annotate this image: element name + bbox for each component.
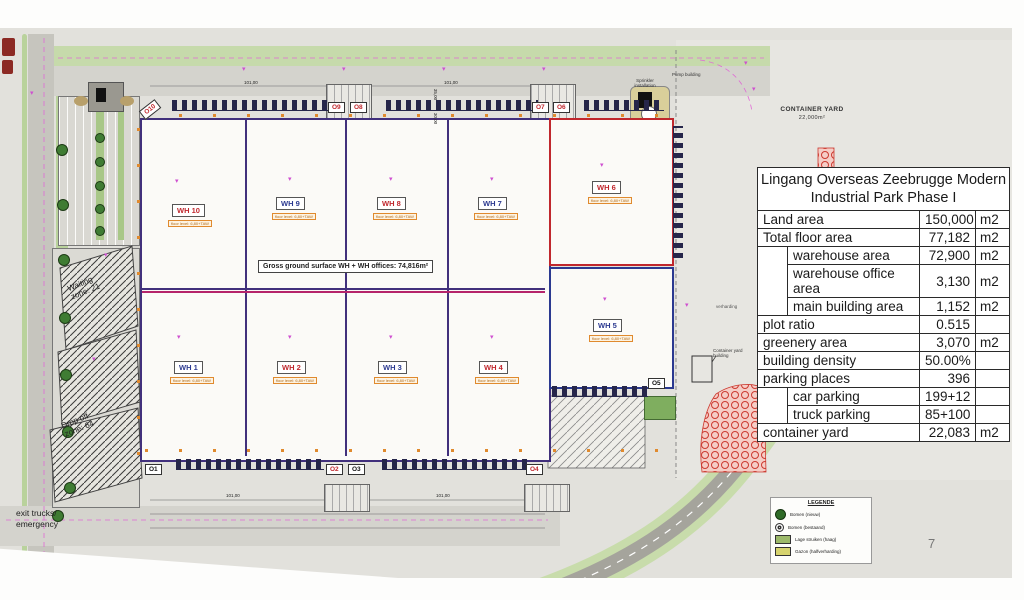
- office-label-o4: O4: [526, 464, 543, 475]
- office-label-o6: O6: [553, 102, 570, 113]
- office-label-o3: O3: [348, 464, 365, 475]
- loading-docks: [176, 459, 324, 470]
- dock-parking-island: [324, 484, 370, 512]
- warehouse-label-wh10: WH 10: [172, 204, 205, 217]
- table-title-row: Lingang Overseas Zeebrugge Modern Indust…: [758, 168, 1010, 211]
- page-margin-top: [0, 0, 1024, 28]
- hydrant-marker-icon: ▾: [288, 334, 292, 341]
- loading-docks: [584, 100, 664, 111]
- floor-level-note: floor level: 6,80+TAW: [273, 377, 317, 384]
- warehouse-label-wh2: WH 2: [277, 361, 306, 374]
- floor-level-note: floor level: 6,80+TAW: [588, 197, 632, 204]
- hydrant-marker-icon: ▾: [288, 176, 292, 183]
- office-label-o1: O1: [145, 464, 162, 475]
- warehouse-label-wh1: WH 1: [174, 361, 203, 374]
- table-row: main building area 1,152 m2: [758, 298, 1010, 316]
- table-row: parking places 396: [758, 370, 1010, 388]
- legend-item: Gazon (halfverharding): [775, 547, 867, 556]
- tick-strip: [145, 114, 665, 117]
- dimension-label: 101,00: [444, 80, 458, 85]
- dimension-label: 101,00: [244, 80, 258, 85]
- site-plan-screenshot: WH 10 floor level: 6,80+TAW WH 9 floor l…: [0, 0, 1024, 600]
- floor-level-note: floor level: 6,80+TAW: [170, 377, 214, 384]
- office-label-o9: O9: [328, 102, 345, 113]
- shrubs-icon: [775, 535, 791, 544]
- table-row: truck parking 85+100: [758, 406, 1010, 424]
- table-row: container yard 22,083 m2: [758, 424, 1010, 442]
- loading-docks: [673, 126, 683, 258]
- hydrant-marker-icon: ▾: [600, 162, 604, 169]
- dock-parking-island: [524, 484, 570, 512]
- warehouse-label-wh4: WH 4: [479, 361, 508, 374]
- table-row: greenery area 3,070 m2: [758, 334, 1010, 352]
- tick-strip: [145, 449, 665, 452]
- table-row: plot ratio 0.515: [758, 316, 1010, 334]
- hydrant-marker-icon: ▾: [603, 296, 607, 303]
- warehouse-label-wh9: WH 9: [276, 197, 305, 210]
- grid-line: [142, 288, 545, 290]
- hydrant-marker-icon: ▾: [542, 66, 546, 73]
- warehouse-label-wh3: WH 3: [378, 361, 407, 374]
- hydrant-marker-icon: ▾: [242, 66, 246, 73]
- hydrant-marker-icon: ▾: [389, 334, 393, 341]
- table-row: building density 50.00%: [758, 352, 1010, 370]
- office-label-o7: O7: [532, 102, 549, 113]
- hydrant-marker-icon: ▾: [389, 176, 393, 183]
- page-number: 7: [928, 536, 935, 551]
- table-row: warehouse office area 3,130 m2: [758, 265, 1010, 298]
- hydrant-marker-icon: ▾: [342, 66, 346, 73]
- warehouse-label-wh5: WH 5: [593, 319, 622, 332]
- warehouse-label-wh6: WH 6: [592, 181, 621, 194]
- legend-title: LEGENDE: [775, 500, 867, 506]
- loading-docks: [386, 100, 538, 111]
- hydrant-marker-icon: ▾: [30, 90, 34, 97]
- grid-line-red: [142, 291, 545, 293]
- hydrant-marker-icon: ▾: [744, 60, 748, 67]
- yard-surface-note: verharding: [716, 304, 737, 309]
- tick-strip: [137, 125, 140, 455]
- legend-item: Bomen (nieuw): [775, 509, 867, 520]
- table-row: Total floor area 77,182 m2: [758, 229, 1010, 247]
- office-label-o8: O8: [350, 102, 367, 113]
- page-margin-right: [1012, 0, 1024, 600]
- dimension-label: 101,00: [226, 493, 240, 498]
- loading-docks: [382, 459, 528, 470]
- office-label-o2: O2: [326, 464, 343, 475]
- loading-docks: [552, 386, 648, 397]
- hydrant-marker-icon: ▾: [177, 334, 181, 341]
- hydrant-marker-icon: ▾: [442, 66, 446, 73]
- dimension-label: 30,00: [433, 113, 438, 124]
- hydrant-marker-icon: ▾: [175, 178, 179, 185]
- gross-surface-note: Gross ground surface WH + WH offices: 74…: [258, 260, 433, 273]
- floor-level-note: floor level: 6,80+TAW: [475, 377, 519, 384]
- hydrant-marker-icon: ▾: [490, 176, 494, 183]
- floor-level-note: floor level: 6,80+TAW: [272, 213, 316, 220]
- hydrant-marker-icon: ▾: [685, 302, 689, 309]
- container-yard-label: CONTAINER YARD 22,000m²: [752, 106, 872, 123]
- legend-item: Bomen (bestaand): [775, 523, 867, 532]
- warehouse-label-wh8: WH 8: [377, 197, 406, 210]
- grass-icon: [775, 547, 791, 556]
- loading-docks: [172, 100, 328, 111]
- table-row: Land area 150,000 m2: [758, 211, 1010, 229]
- green-patch: [644, 396, 676, 420]
- indent-cell: [758, 388, 788, 424]
- legend-item: Lage struiken (haag): [775, 535, 867, 544]
- hydrant-marker-icon: ▾: [92, 356, 96, 363]
- floor-level-note: floor level: 6,80+TAW: [589, 335, 633, 342]
- table-title: Lingang Overseas Zeebrugge Modern Indust…: [758, 168, 1010, 211]
- floor-level-note: floor level: 6,80+TAW: [474, 213, 518, 220]
- warehouse-label-wh7: WH 7: [478, 197, 507, 210]
- legend-box: LEGENDE Bomen (nieuw) Bomen (bestaand) L…: [770, 497, 872, 564]
- table-row: warehouse area 72,900 m2: [758, 247, 1010, 265]
- hydrant-marker-icon: ▾: [752, 86, 756, 93]
- indent-cell: [758, 247, 788, 316]
- site-data-table: Lingang Overseas Zeebrugge Modern Indust…: [757, 167, 1010, 442]
- floor-level-note: floor level: 6,80+TAW: [373, 213, 417, 220]
- sprinkler-label: Sprinkler installation: [628, 78, 662, 88]
- dimension-label: 35,00: [433, 89, 438, 100]
- hydrant-marker-icon: ▾: [104, 252, 108, 259]
- tree-new-icon: [775, 509, 786, 520]
- office-label-o5: O5: [648, 378, 665, 389]
- floor-level-note: floor level: 6,80+TAW: [168, 220, 212, 227]
- table-row: car parking 199+12: [758, 388, 1010, 406]
- dimension-label: 101,00: [436, 493, 450, 498]
- pump-building-label: Pump building: [672, 72, 702, 77]
- container-yard-building-label: Container yard building: [713, 348, 755, 358]
- hydrant-marker-icon: ▾: [490, 334, 494, 341]
- tree-existing-icon: [775, 523, 784, 532]
- floor-level-note: floor level: 6,80+TAW: [374, 377, 418, 384]
- exit-trucks-label: exit trucks/ emergency: [16, 508, 58, 529]
